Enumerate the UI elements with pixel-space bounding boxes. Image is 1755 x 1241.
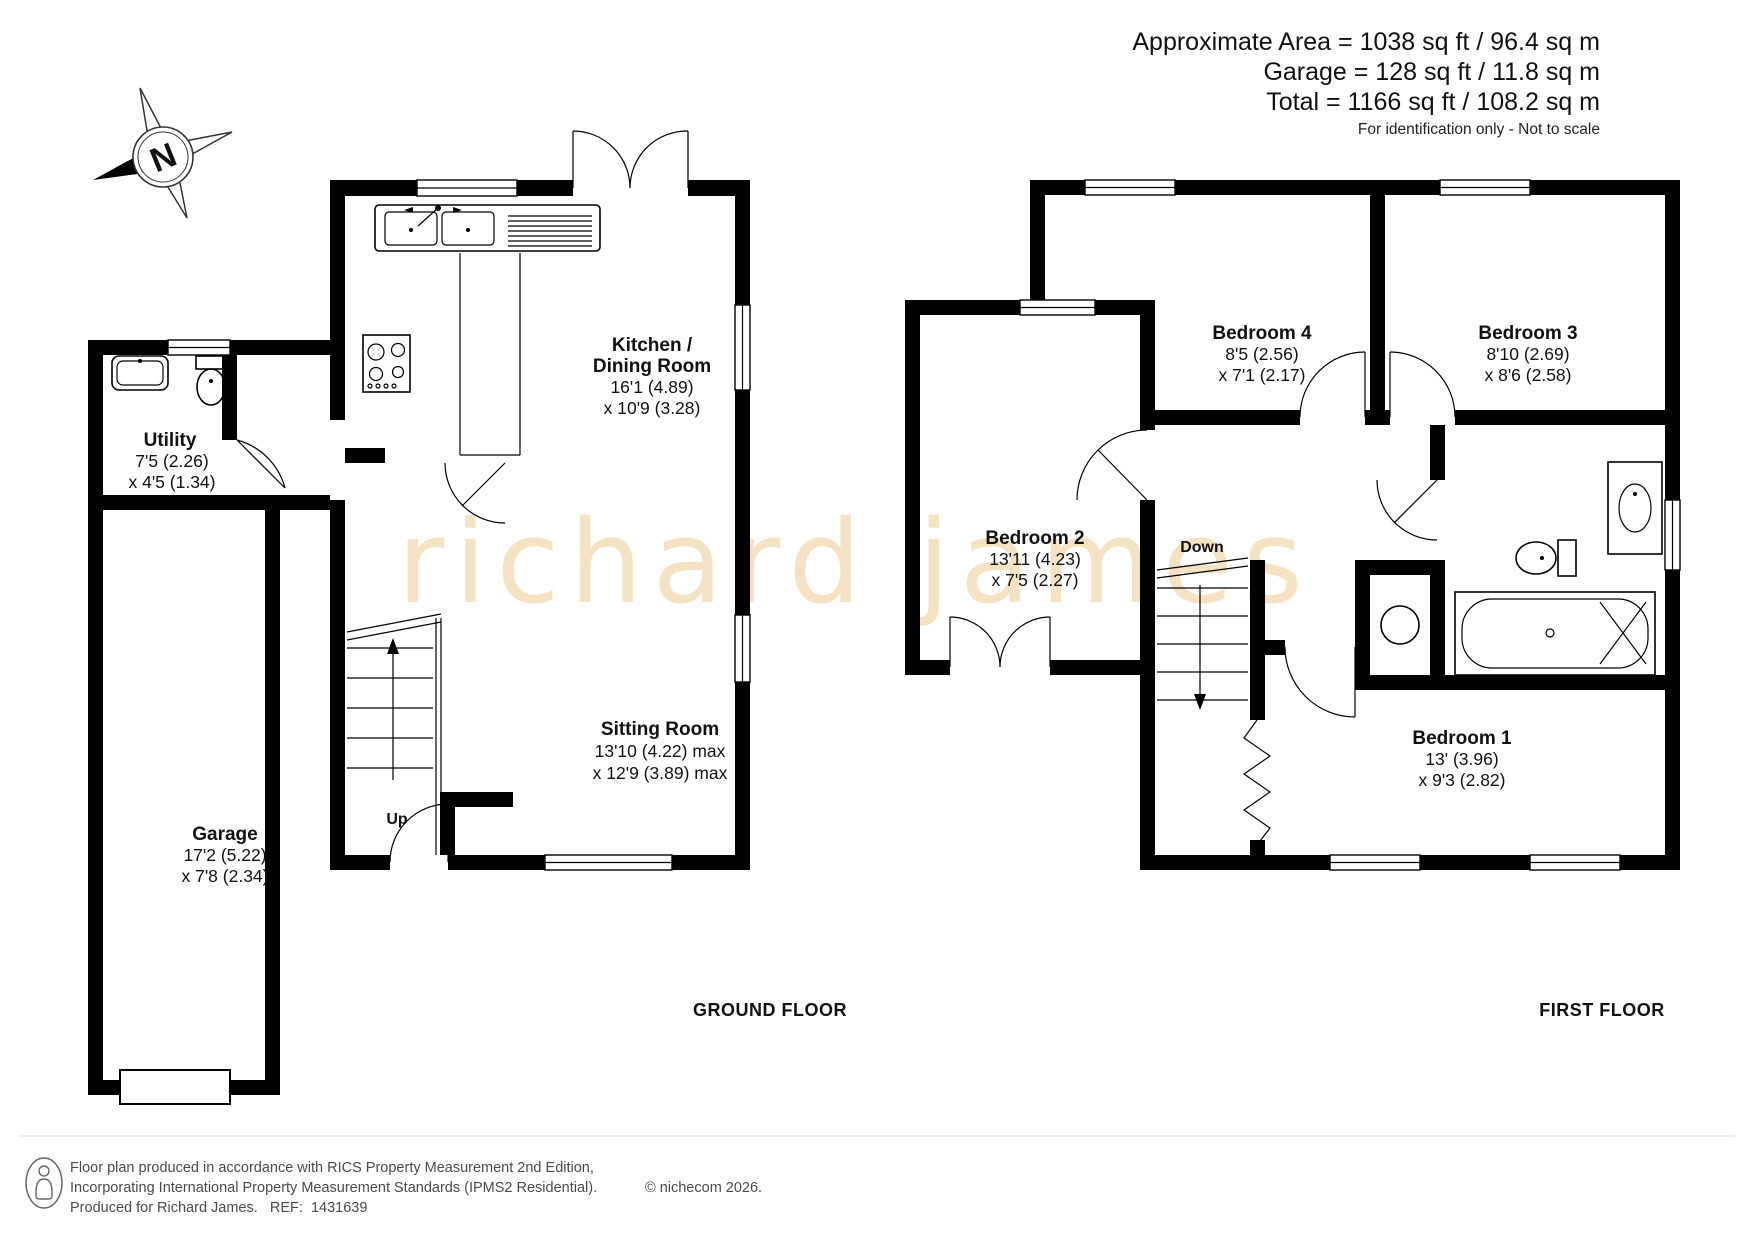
svg-text:x 7'5 (2.27): x 7'5 (2.27) — [992, 570, 1079, 590]
hob — [363, 335, 410, 392]
kitchen-counter — [460, 253, 520, 455]
svg-text:Utility: Utility — [144, 430, 197, 451]
toilet — [196, 356, 226, 405]
wardrobe-zigzag — [1244, 720, 1270, 845]
footer: Floor plan produced in accordance with R… — [20, 1136, 1735, 1216]
svg-text:x 7'1 (2.17): x 7'1 (2.17) — [1219, 365, 1306, 385]
cylinder — [1381, 606, 1419, 644]
footer-line1: Floor plan produced in accordance with R… — [70, 1160, 594, 1176]
first-floor-title: FIRST FLOOR — [1539, 1000, 1665, 1020]
room-label-bedroom2: Bedroom 2 13'11 (4.23) x 7'5 (2.27) — [985, 528, 1084, 590]
up-arrow-icon — [387, 638, 399, 654]
room-label-bedroom3: Bedroom 3 8'10 (2.69) x 8'6 (2.58) — [1478, 323, 1577, 385]
compass-icon: N — [93, 88, 232, 218]
svg-text:Sitting Room: Sitting Room — [601, 719, 719, 740]
svg-text:x 8'6 (2.58): x 8'6 (2.58) — [1485, 365, 1572, 385]
svg-text:x 7'8 (2.34): x 7'8 (2.34) — [182, 866, 269, 886]
svg-text:x 4'5 (1.34): x 4'5 (1.34) — [129, 472, 216, 492]
room-label-utility: Utility 7'5 (2.26) x 4'5 (1.34) — [129, 430, 216, 492]
svg-text:x 10'9 (3.28): x 10'9 (3.28) — [604, 398, 701, 418]
svg-text:13'11 (4.23): 13'11 (4.23) — [989, 549, 1081, 569]
stairs-up: Up — [347, 614, 441, 855]
svg-text:8'10 (2.69): 8'10 (2.69) — [1486, 344, 1569, 364]
bath — [1455, 592, 1655, 675]
svg-text:13'10 (4.22) max: 13'10 (4.22) max — [595, 741, 726, 761]
floorplan-page: richard james Approximate Area = 1038 sq… — [0, 0, 1755, 1241]
disclaimer-text: For identification only - Not to scale — [1358, 121, 1600, 138]
bedroom1-door-arc — [1285, 647, 1355, 717]
bedroom3-door-arc — [1390, 352, 1455, 417]
garage-door — [120, 1070, 230, 1104]
footer-line3: Produced for Richard James. REF: 1431639 — [70, 1200, 367, 1216]
french-door-arcs — [573, 131, 688, 188]
room-label-bedroom1: Bedroom 1 13' (3.96) x 9'3 (2.82) — [1412, 728, 1512, 790]
watermark: richard james — [397, 496, 1313, 630]
svg-text:x 9'3 (2.82): x 9'3 (2.82) — [1419, 770, 1506, 790]
footer-copyright: © nichecom 2026. — [645, 1180, 762, 1196]
down-label: Down — [1180, 539, 1224, 556]
garage-area-text: Garage = 128 sq ft / 11.8 sq m — [1263, 58, 1600, 86]
svg-text:Bedroom 4: Bedroom 4 — [1212, 323, 1312, 344]
svg-text:17'2 (5.22): 17'2 (5.22) — [183, 845, 266, 865]
svg-text:Kitchen /: Kitchen / — [612, 335, 693, 356]
svg-text:Bedroom 3: Bedroom 3 — [1478, 323, 1577, 344]
svg-text:16'1 (4.89): 16'1 (4.89) — [610, 377, 693, 397]
utility-sink — [112, 356, 168, 390]
toilet — [1516, 540, 1576, 576]
down-arrow-icon — [1194, 694, 1206, 710]
header-area-summary: Approximate Area = 1038 sq ft / 96.4 sq … — [1132, 28, 1600, 138]
person-icon — [26, 1158, 62, 1208]
up-label: Up — [386, 811, 408, 828]
ground-floor-title: GROUND FLOOR — [693, 1000, 847, 1020]
svg-text:Bedroom 2: Bedroom 2 — [985, 528, 1084, 549]
svg-text:8'5 (2.56): 8'5 (2.56) — [1225, 344, 1298, 364]
wash-basin — [1608, 462, 1662, 554]
total-area-text: Total = 1166 sq ft / 108.2 sq m — [1266, 88, 1600, 116]
approx-area-text: Approximate Area = 1038 sq ft / 96.4 sq … — [1132, 28, 1600, 56]
svg-text:x 12'9 (3.89) max: x 12'9 (3.89) max — [593, 763, 728, 783]
utility-door-arc — [237, 440, 285, 488]
room-label-sitting: Sitting Room 13'10 (4.22) max x 12'9 (3.… — [593, 719, 728, 783]
svg-text:Bedroom 1: Bedroom 1 — [1412, 728, 1512, 749]
room-label-bedroom4: Bedroom 4 8'5 (2.56) x 7'1 (2.17) — [1212, 323, 1312, 385]
svg-text:7'5 (2.26): 7'5 (2.26) — [135, 451, 208, 471]
bedroom2-door-arc — [1077, 430, 1147, 500]
bathroom-door-arc — [1377, 480, 1437, 540]
footer-line2: Incorporating International Property Mea… — [70, 1180, 597, 1196]
room-label-kitchen: Kitchen / Dining Room 16'1 (4.89) x 10'9… — [593, 335, 711, 418]
svg-text:Garage: Garage — [192, 824, 257, 845]
bedroom4-door-arc — [1300, 352, 1365, 417]
svg-text:Dining Room: Dining Room — [593, 356, 711, 377]
svg-text:13' (3.96): 13' (3.96) — [1425, 749, 1498, 769]
room-label-garage: Garage 17'2 (5.22) x 7'8 (2.34) — [182, 824, 269, 886]
kitchen-sink — [375, 205, 600, 251]
